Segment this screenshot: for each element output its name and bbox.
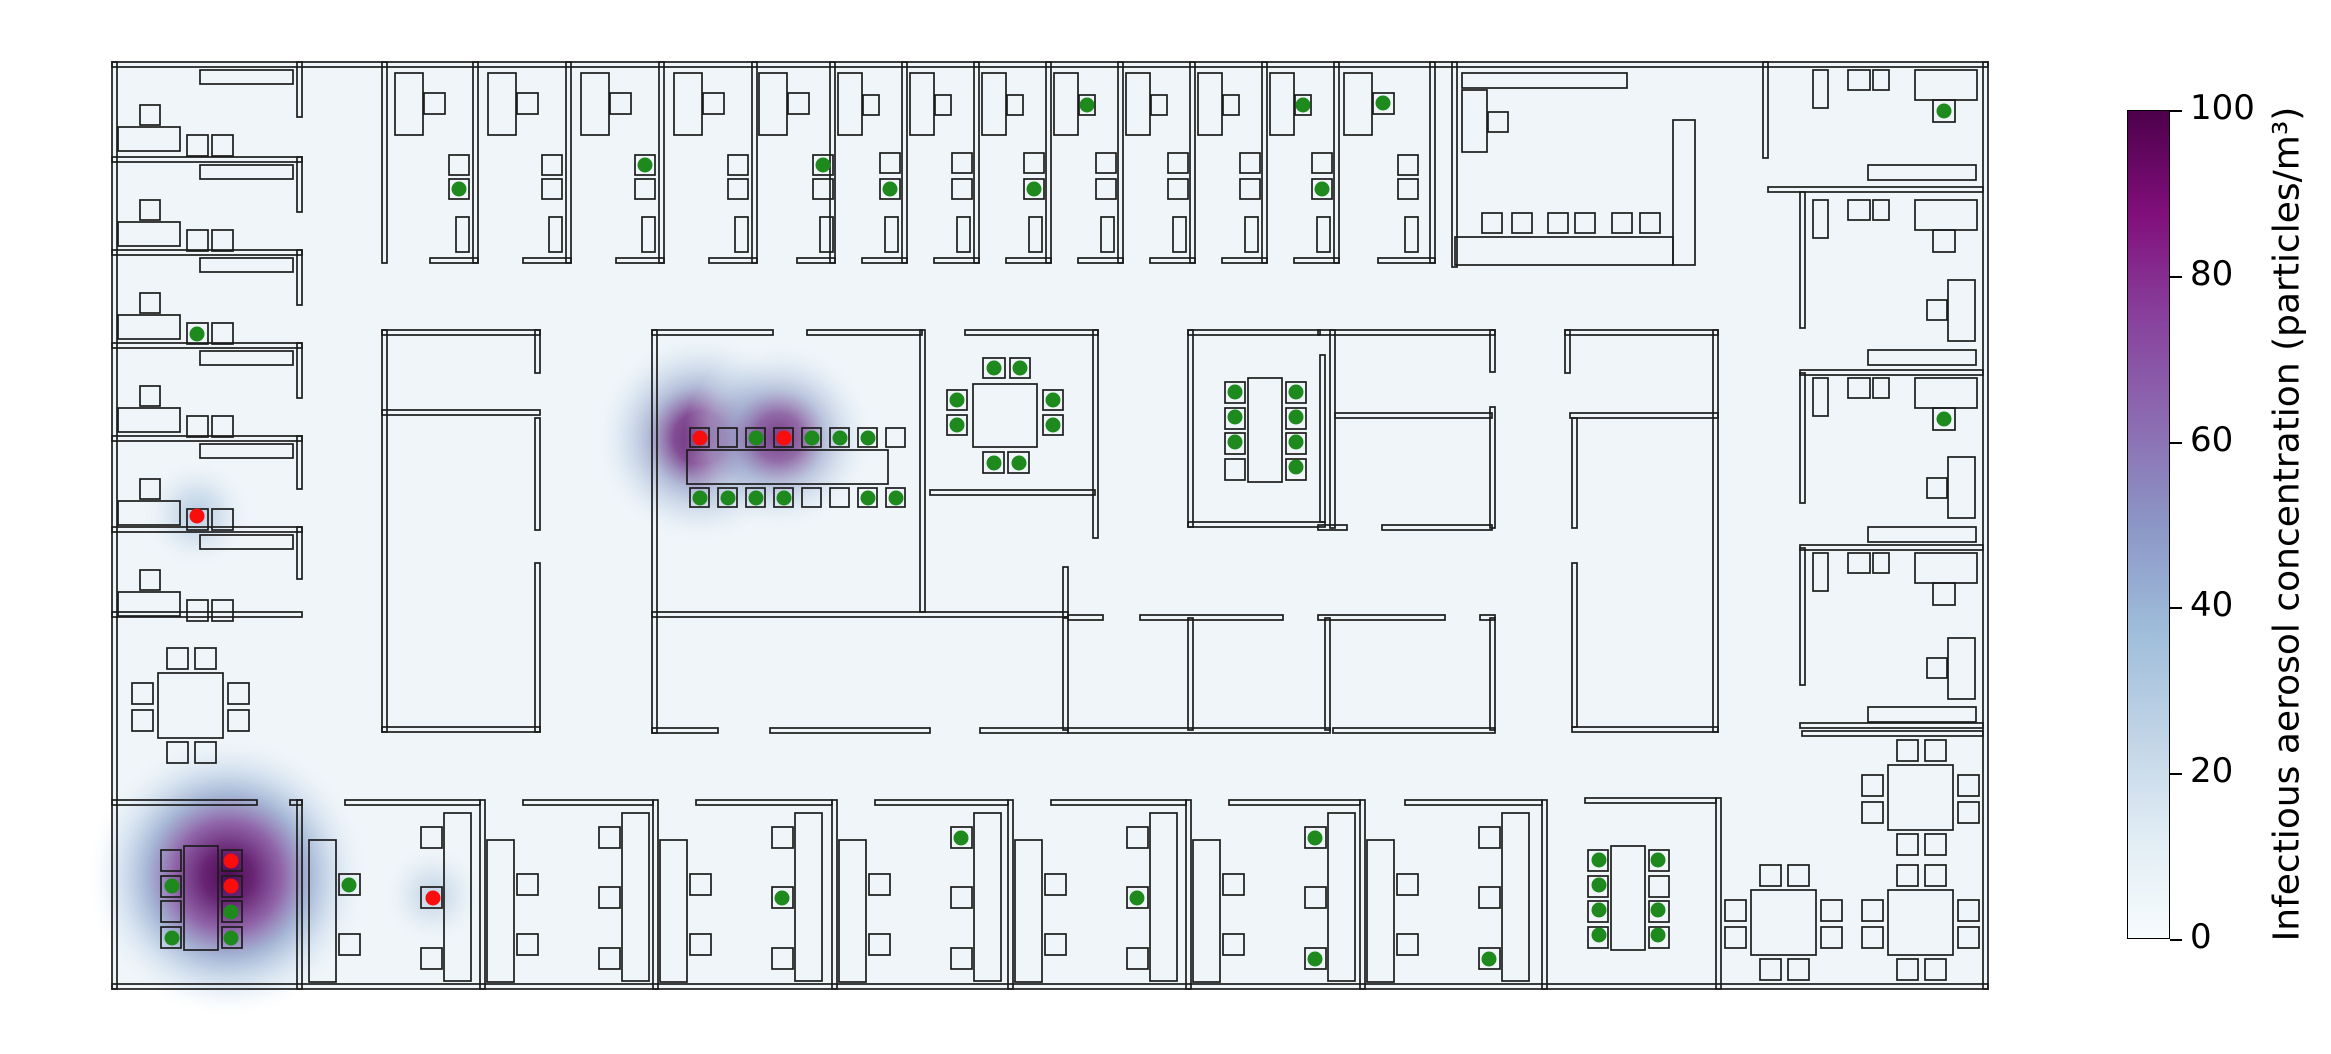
person-healthy-dot [833, 431, 848, 446]
colorbar-label: Infectious aerosol concentration (partic… [2267, 107, 2308, 942]
person-healthy-dot [805, 431, 820, 446]
person-healthy-dot [950, 393, 965, 408]
colorbar-tick-mark [2170, 939, 2182, 941]
person-healthy-dot [1592, 903, 1607, 918]
person-healthy-dot [224, 931, 239, 946]
colorbar-tick-label: 80 [2190, 254, 2233, 294]
person-healthy-dot [1130, 891, 1145, 906]
colorbar-tick-mark [2170, 442, 2182, 444]
person-healthy-dot [342, 878, 357, 893]
person-infected-dot [777, 431, 792, 446]
person-healthy-dot [1027, 182, 1042, 197]
person-infected-dot [224, 854, 239, 869]
person-infected-dot [190, 509, 205, 524]
colorbar-tick-label: 60 [2190, 420, 2233, 460]
person-healthy-dot [775, 891, 790, 906]
person-healthy-dot [1228, 435, 1243, 450]
person-healthy-dot [1376, 96, 1391, 111]
person-healthy-dot [165, 931, 180, 946]
person-healthy-dot [721, 491, 736, 506]
colorbar-tick-mark [2170, 607, 2182, 609]
person-healthy-dot [987, 456, 1002, 471]
colorbar-tick-label: 0 [2190, 917, 2212, 957]
person-healthy-dot [816, 158, 831, 173]
person-healthy-dot [1289, 460, 1304, 475]
person-healthy-dot [987, 361, 1002, 376]
person-healthy-dot [1592, 853, 1607, 868]
person-healthy-dot [889, 491, 904, 506]
colorbar-tick-label: 40 [2190, 585, 2233, 625]
person-healthy-dot [749, 491, 764, 506]
person-healthy-dot [1080, 98, 1095, 113]
person-healthy-dot [1651, 853, 1666, 868]
person-healthy-dot [749, 431, 764, 446]
person-healthy-dot [1651, 928, 1666, 943]
colorbar-tick-mark [2170, 773, 2182, 775]
floorplan [0, 0, 2331, 1054]
person-healthy-dot [1937, 412, 1952, 427]
person-healthy-dot [777, 491, 792, 506]
person-healthy-dot [861, 431, 876, 446]
person-healthy-dot [1592, 878, 1607, 893]
colorbar-gradient [2127, 110, 2170, 939]
floor-area [112, 62, 1988, 989]
person-healthy-dot [165, 879, 180, 894]
person-healthy-dot [1308, 952, 1323, 967]
figure-canvas: 020406080100 Infectious aerosol concentr… [0, 0, 2331, 1054]
person-infected-dot [426, 891, 441, 906]
person-healthy-dot [1228, 385, 1243, 400]
person-healthy-dot [1651, 903, 1666, 918]
person-healthy-dot [190, 327, 205, 342]
person-infected-dot [224, 879, 239, 894]
person-healthy-dot [1013, 361, 1028, 376]
person-healthy-dot [1296, 98, 1311, 113]
person-healthy-dot [954, 831, 969, 846]
person-healthy-dot [1289, 410, 1304, 425]
person-healthy-dot [1315, 182, 1330, 197]
person-healthy-dot [1046, 418, 1061, 433]
person-infected-dot [693, 431, 708, 446]
person-healthy-dot [1289, 435, 1304, 450]
person-healthy-dot [224, 905, 239, 920]
colorbar-tick-label: 20 [2190, 751, 2233, 791]
colorbar-tick-mark [2170, 276, 2182, 278]
person-healthy-dot [1012, 456, 1027, 471]
person-healthy-dot [1046, 393, 1061, 408]
colorbar-tick-mark [2170, 110, 2182, 112]
person-healthy-dot [1228, 410, 1243, 425]
person-healthy-dot [638, 158, 653, 173]
person-healthy-dot [883, 182, 898, 197]
person-healthy-dot [1289, 385, 1304, 400]
person-healthy-dot [861, 491, 876, 506]
person-healthy-dot [1937, 104, 1952, 119]
person-healthy-dot [1482, 952, 1497, 967]
person-healthy-dot [1308, 831, 1323, 846]
person-healthy-dot [1592, 928, 1607, 943]
person-healthy-dot [950, 418, 965, 433]
person-healthy-dot [452, 182, 467, 197]
person-healthy-dot [693, 491, 708, 506]
colorbar-tick-label: 100 [2190, 88, 2255, 128]
